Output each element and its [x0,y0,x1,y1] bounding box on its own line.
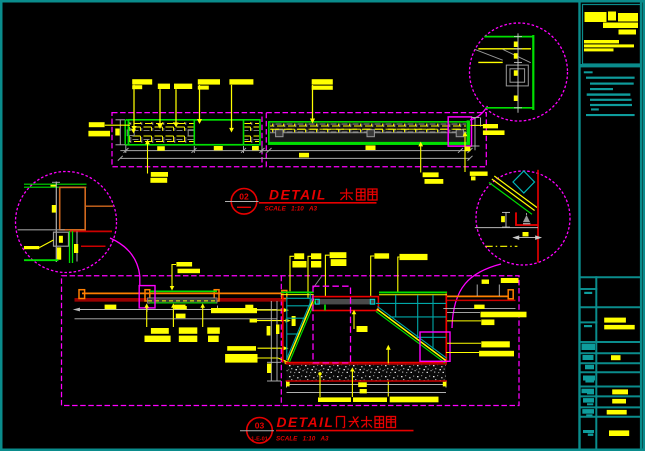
svg-text:SCALE 1:10 A3: SCALE 1:10 A3 [276,435,329,442]
svg-text:03: 03 [255,421,265,431]
svg-text:02: 02 [239,192,249,202]
svg-text:DETAIL: DETAIL [269,187,327,202]
svg-text:1-E-01: 1-E-01 [251,437,268,443]
svg-text:SCALE 1:10 A3: SCALE 1:10 A3 [265,206,318,213]
svg-text:DETAIL: DETAIL [277,415,335,430]
